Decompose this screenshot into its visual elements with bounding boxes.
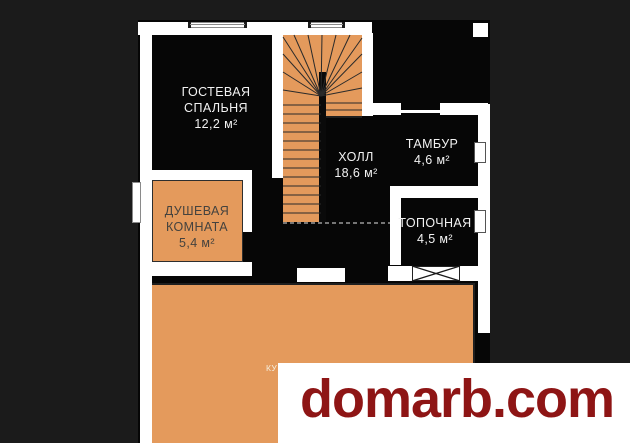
wall-porch-bottom-left: [372, 103, 401, 115]
guest-bedroom-area: 12,2 м²: [182, 116, 251, 132]
label-kitchen-fragment: КУ: [266, 363, 277, 373]
shower-room-area: 5,4 м²: [165, 235, 229, 251]
watermark-text: domarb.com: [292, 368, 622, 430]
label-guest-bedroom: ГОСТЕВАЯ СПАЛЬНЯ 12,2 м²: [182, 84, 251, 132]
window-top-2-icon: [310, 22, 343, 28]
shower-room-name-2: КОМНАТА: [165, 219, 229, 235]
shower-room-name-1: ДУШЕВАЯ: [165, 203, 229, 219]
guest-bedroom-name-2: СПАЛЬНЯ: [182, 100, 251, 116]
tambour-area: 4,6 м²: [406, 152, 459, 168]
label-hall: ХОЛЛ 18,6 м²: [334, 149, 377, 181]
wall-hall-kitchen-c: [460, 266, 478, 281]
wall-corner-square: [473, 23, 488, 37]
stair-divider-wall: [319, 72, 326, 224]
label-boiler-room: ТОПОЧНАЯ 4,5 м²: [398, 215, 471, 247]
tambour-name: ТАМБУР: [406, 136, 459, 152]
stair-right-flight: [326, 96, 362, 118]
wall-shower-bottom: [140, 262, 252, 276]
wall-bedroom-bottom: [140, 170, 252, 180]
guest-bedroom-name-1: ГОСТЕВАЯ: [182, 84, 251, 100]
boiler-room-area: 4,5 м²: [398, 231, 471, 247]
hall-area: 18,6 м²: [334, 165, 377, 181]
stair-left-flight: [283, 96, 321, 222]
wall-bedroom-stair: [272, 35, 283, 178]
window-cross-box-icon: [412, 266, 460, 281]
hall-name: ХОЛЛ: [334, 149, 377, 165]
floor-plan-screenshot: ГОСТЕВАЯ СПАЛЬНЯ 12,2 м² ДУШЕВАЯ КОМНАТА…: [0, 0, 630, 443]
window-mullion-tick: [244, 22, 247, 28]
wall-left: [140, 22, 152, 443]
door-threshold-line: [401, 110, 440, 113]
window-boiler-icon: [474, 210, 486, 233]
window-tambour-icon: [474, 142, 486, 163]
window-mullion-tick: [342, 22, 345, 28]
wall-shower-right: [243, 170, 252, 232]
window-mullion-tick: [308, 22, 311, 28]
label-tambour: ТАМБУР 4,6 м²: [406, 136, 459, 168]
wall-tambour-bottom: [390, 186, 478, 198]
label-shower-room: ДУШЕВАЯ КОМНАТА 5,4 м²: [165, 203, 229, 251]
window-mullion-tick: [188, 22, 191, 28]
wall-hall-kitchen-a: [297, 268, 345, 282]
window-top-1-icon: [190, 22, 245, 28]
wall-hall-kitchen-b: [388, 266, 412, 281]
boiler-room-name: ТОПОЧНАЯ: [398, 215, 471, 231]
window-left-shower-icon: [132, 182, 141, 223]
